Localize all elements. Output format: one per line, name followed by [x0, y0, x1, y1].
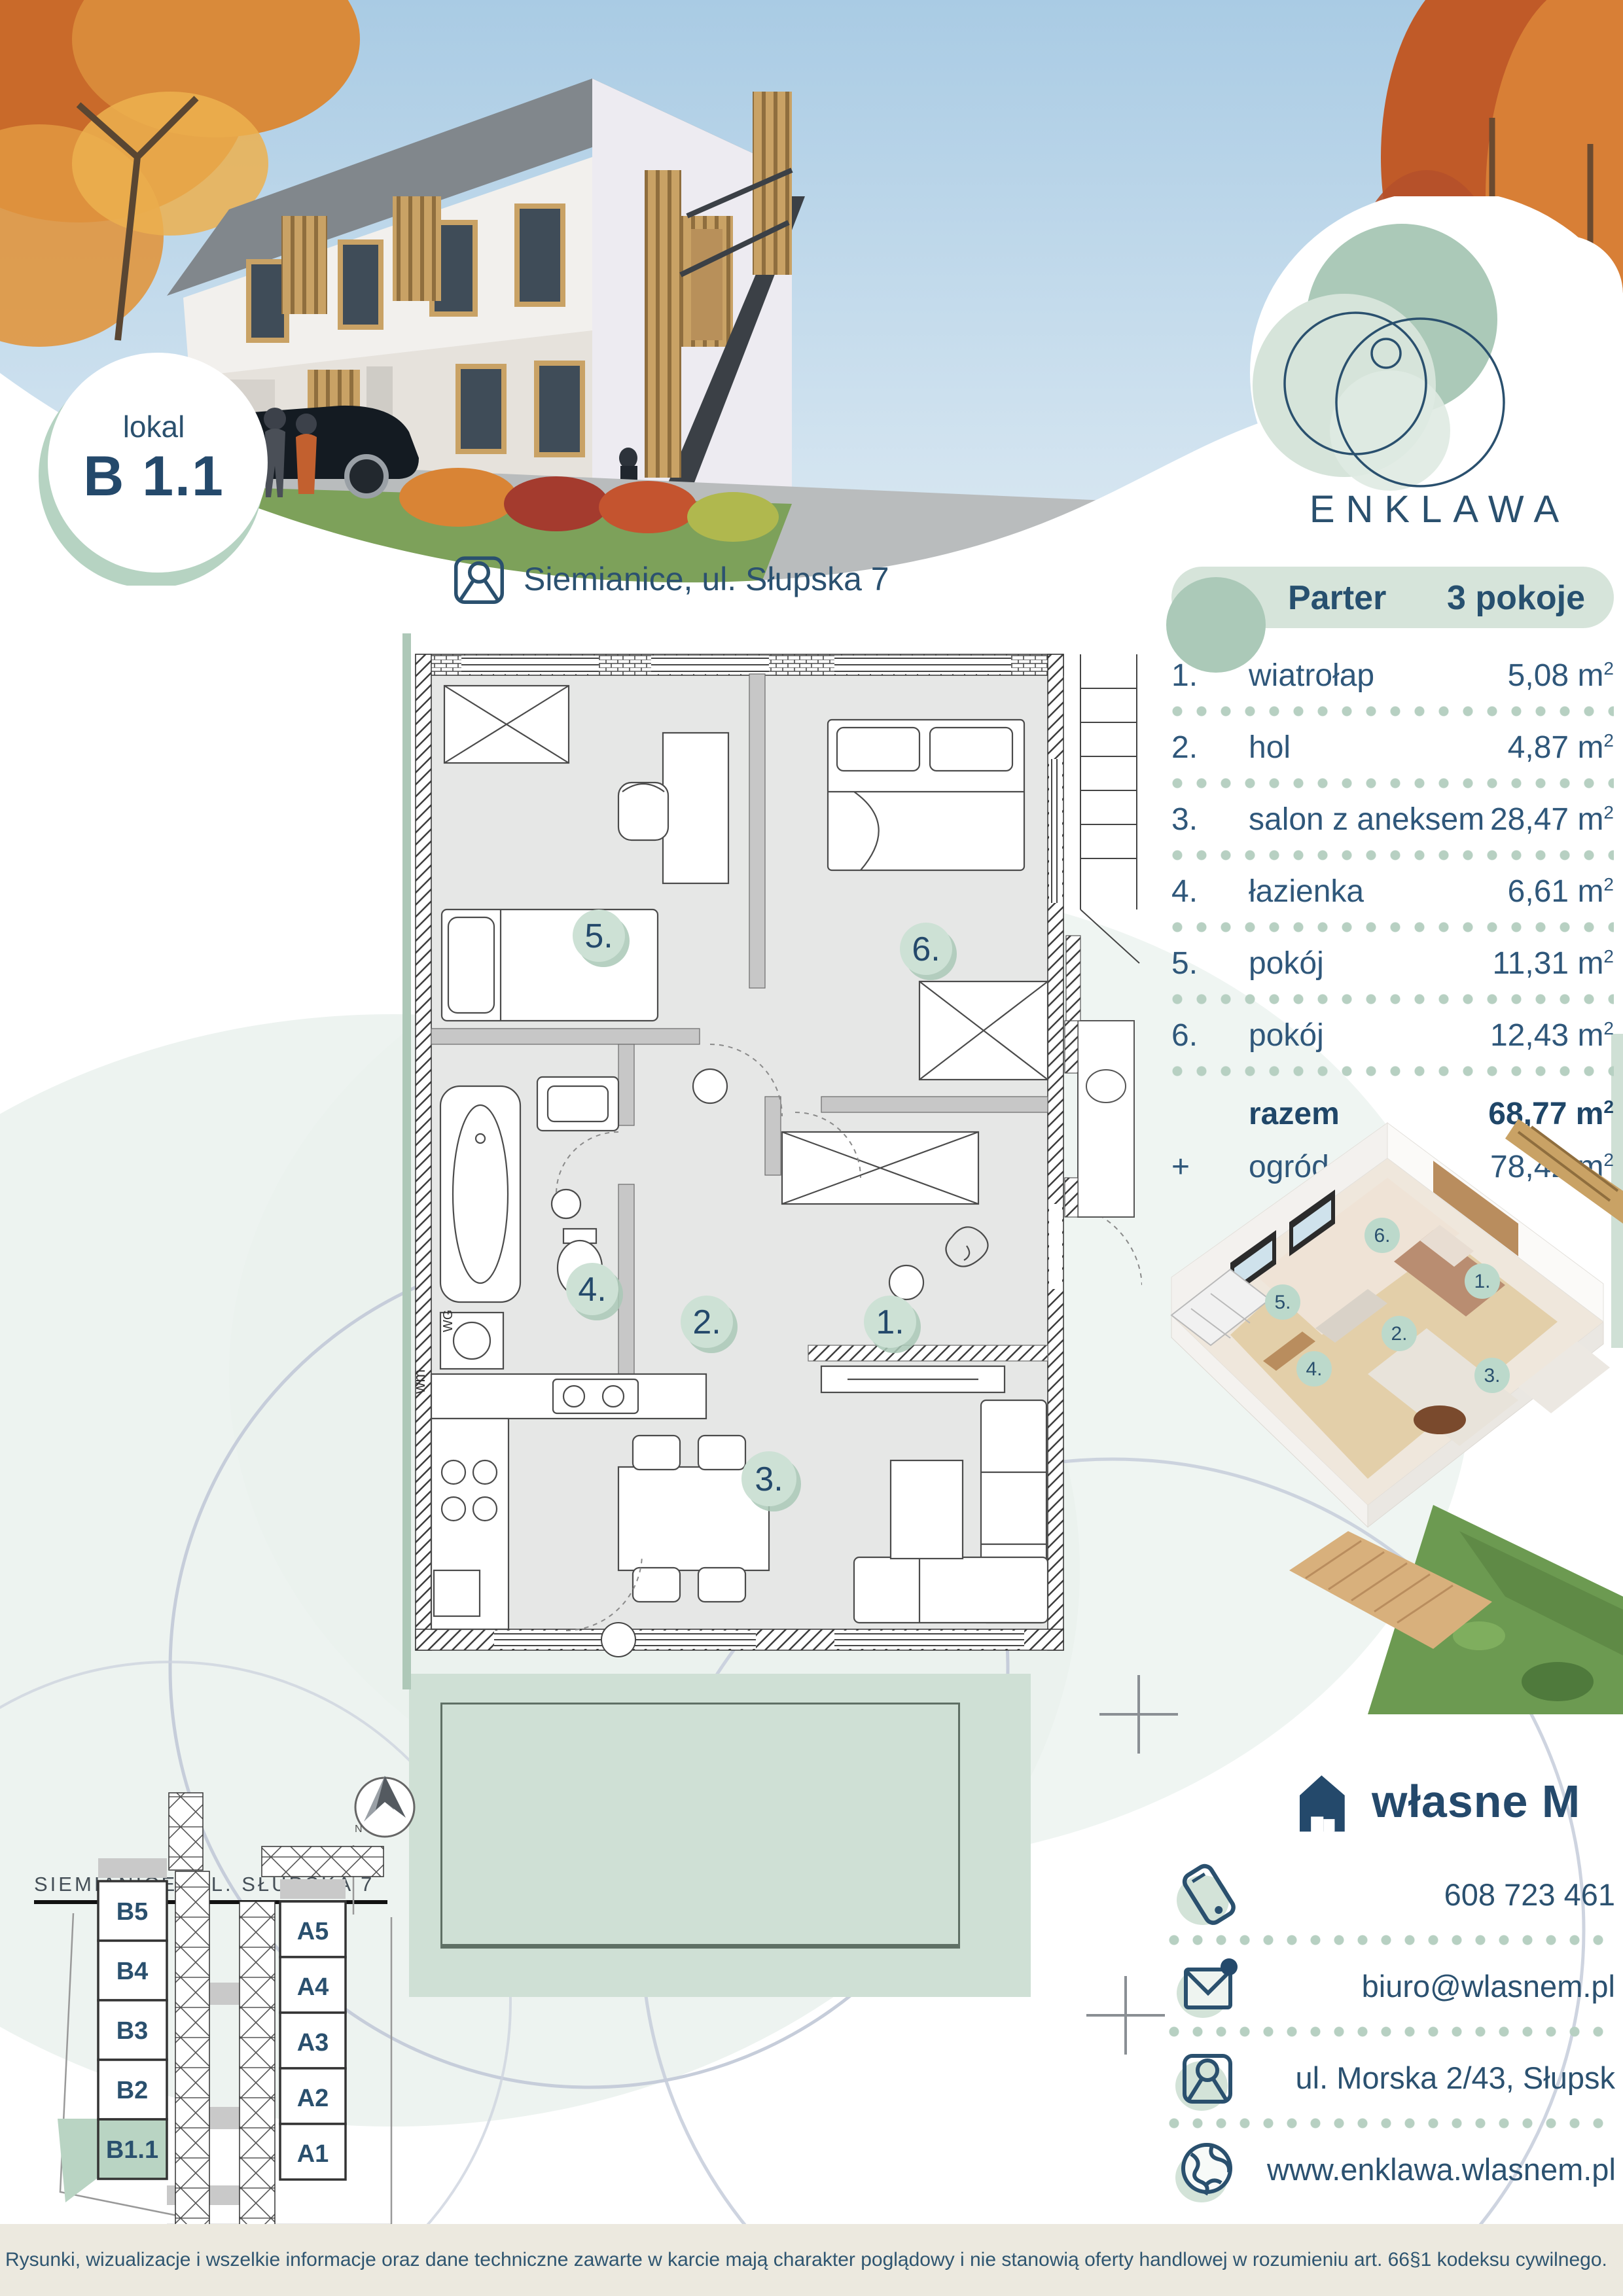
- render-number-4: 4.: [1306, 1358, 1322, 1380]
- dotted-divider: [1171, 777, 1614, 789]
- dotted-divider: [1169, 2118, 1615, 2128]
- plan-label-wm: wm: [411, 1369, 429, 1394]
- dotted-divider: [1171, 993, 1614, 1005]
- phone-number: 608 723 461: [1267, 1877, 1615, 1913]
- render-number-1: 1.: [1474, 1271, 1490, 1292]
- room-name: łazienka: [1249, 874, 1508, 910]
- unit-number: B 1.1: [62, 444, 245, 509]
- rooms-header: Parter 3 pokoje: [1171, 567, 1614, 628]
- dotted-divider: [1169, 2026, 1615, 2037]
- website-row: www.enklawa.wlasnem.pl: [1169, 2134, 1615, 2204]
- room-name: salon z aneksem: [1249, 802, 1490, 838]
- unit-a4: A4: [297, 1973, 329, 2001]
- survey-cross-bottom: [1086, 1976, 1165, 2055]
- footer-bar: Rysunki, wizualizacje i wszelkie informa…: [0, 2224, 1623, 2296]
- room-no: 2.: [1171, 730, 1249, 766]
- room-area: 11,31 m2: [1493, 945, 1614, 981]
- unit-b3: B3: [116, 2017, 149, 2045]
- plan-number-1: 1.: [876, 1303, 904, 1341]
- isometric-render: 6. 5. 1. 2. 4. 3.: [1152, 1112, 1623, 1714]
- unit-a1: A1: [297, 2140, 329, 2168]
- room-row: 6. pokój 12,43 m2: [1171, 1005, 1614, 1065]
- room-no: 5.: [1171, 945, 1249, 981]
- location-row: Siemianice, ul. Słupska 7: [452, 550, 910, 609]
- dotted-divider: [1171, 921, 1614, 933]
- location-pin-icon: [452, 552, 507, 607]
- flyer-page: lokal B 1.1 ENKLAWA Siemianice, ul. Słup…: [0, 0, 1623, 2296]
- garden-fence: [440, 1703, 960, 1949]
- room-row: 5. pokój 11,31 m2: [1171, 933, 1614, 993]
- room-name: hol: [1249, 730, 1508, 766]
- room-name: wiatrołap: [1249, 658, 1508, 694]
- rooms-count: 3 pokoje: [1447, 578, 1585, 618]
- render-number-2: 2.: [1391, 1323, 1407, 1345]
- render-number-5: 5.: [1274, 1292, 1291, 1313]
- email-icon: [1169, 1951, 1247, 2021]
- plan-number-5: 5.: [584, 917, 613, 955]
- contact-block: 608 723 461 biuro@wlasnem.pl: [1169, 1860, 1615, 2204]
- room-area: 12,43 m2: [1490, 1017, 1614, 1053]
- room-area: 6,61 m2: [1508, 874, 1614, 910]
- room-row: 2. hol 4,87 m2: [1171, 717, 1614, 777]
- room-area: 4,87 m2: [1508, 730, 1614, 766]
- dotted-divider: [1171, 849, 1614, 861]
- siteplan-parking: [169, 1793, 383, 2225]
- unit-a3: A3: [297, 2029, 329, 2057]
- room-row: 4. łazienka 6,61 m2: [1171, 861, 1614, 921]
- room-no: 4.: [1171, 874, 1249, 910]
- email-address: biuro@wlasnem.pl: [1267, 1968, 1615, 2004]
- siteplan-b11-garden: [58, 2119, 98, 2202]
- room-name: pokój: [1249, 945, 1493, 981]
- room-no: 6.: [1171, 1017, 1249, 1053]
- plan-number-4: 4.: [578, 1271, 606, 1309]
- compass-icon: N: [355, 1776, 414, 1837]
- unit-b11-highlighted: B1.1: [106, 2136, 158, 2164]
- unit-b2: B2: [116, 2077, 149, 2104]
- brand-name: własne M: [1372, 1775, 1580, 1828]
- room-name: pokój: [1249, 1017, 1490, 1053]
- unit-a5: A5: [297, 1918, 329, 1945]
- plan-number-3: 3.: [755, 1460, 783, 1498]
- room-area: 5,08 m2: [1508, 658, 1614, 694]
- room-area: 28,47 m2: [1490, 802, 1614, 838]
- plan-number-6: 6.: [912, 930, 940, 968]
- brand-row: własne M: [1286, 1767, 1616, 1835]
- globe-icon: [1169, 2134, 1247, 2204]
- floor-label: Parter: [1288, 578, 1386, 618]
- phone-row: 608 723 461: [1169, 1860, 1615, 1929]
- disclaimer-text: Rysunki, wizualizacje i wszelkie informa…: [0, 2249, 1607, 2271]
- unit-badge-text: lokal B 1.1: [62, 409, 245, 509]
- email-row: biuro@wlasnem.pl: [1169, 1951, 1615, 2021]
- unit-b5: B5: [116, 1898, 149, 1926]
- phone-icon: [1169, 1860, 1247, 1929]
- house-icon: [1286, 1767, 1355, 1835]
- address-row: ul. Morska 2/43, Słupsk: [1169, 2043, 1615, 2112]
- unit-badge-label: lokal: [62, 409, 245, 444]
- rooms-table: Parter 3 pokoje 1. wiatrołap 5,08 m2 2. …: [1171, 567, 1614, 1192]
- location-text: Siemianice, ul. Słupska 7: [524, 560, 889, 598]
- porch-and-stairs: [1065, 654, 1139, 1217]
- dotted-divider: [1171, 1065, 1614, 1077]
- dotted-divider: [1171, 705, 1614, 717]
- render-number-3: 3.: [1484, 1365, 1500, 1386]
- office-address: ul. Morska 2/43, Słupsk: [1267, 2060, 1615, 2096]
- room-no: 3.: [1171, 802, 1249, 838]
- unit-b4: B4: [116, 1958, 149, 1985]
- render-number-6: 6.: [1374, 1225, 1390, 1246]
- site-plan: N SIEMIANICE, UL. SŁUPSKA 7: [0, 1767, 432, 2231]
- unit-a2: A2: [297, 2085, 329, 2112]
- plot-boundary-strip: [402, 633, 411, 1689]
- dotted-divider: [1169, 1935, 1615, 1945]
- room-row: 3. salon z aneksem 28,47 m2: [1171, 789, 1614, 849]
- header-accent-circle: [1166, 577, 1266, 673]
- svg-text:N: N: [355, 1824, 363, 1835]
- website-url: www.enklawa.wlasnem.pl: [1267, 2151, 1616, 2187]
- logo-wordmark: ENKLAWA: [1270, 487, 1610, 531]
- map-pin-icon: [1169, 2043, 1247, 2112]
- plan-number-2: 2.: [692, 1303, 721, 1341]
- plan-label-wg: WG: [441, 1310, 455, 1332]
- floor-plan: wm WG 1. 2. 3. 4. 5. 6.: [402, 628, 1142, 1727]
